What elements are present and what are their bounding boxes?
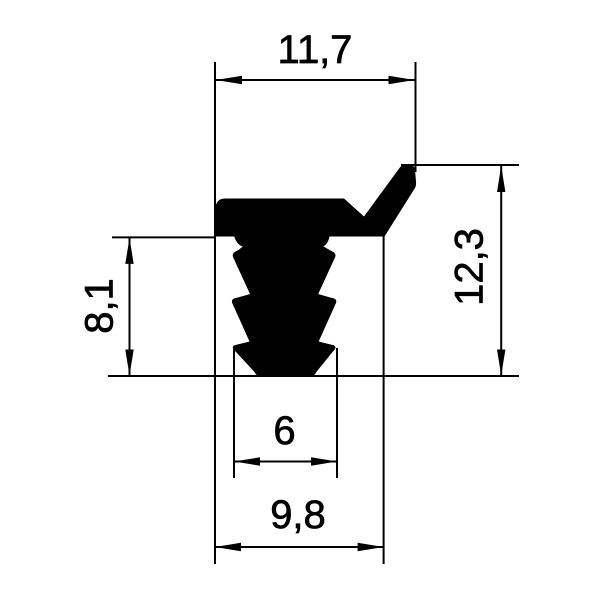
svg-text:12,3: 12,3 (448, 228, 492, 306)
svg-text:8,1: 8,1 (77, 278, 121, 334)
svg-text:11,7: 11,7 (278, 28, 353, 72)
svg-text:6: 6 (273, 409, 295, 453)
svg-text:9,8: 9,8 (270, 493, 326, 537)
